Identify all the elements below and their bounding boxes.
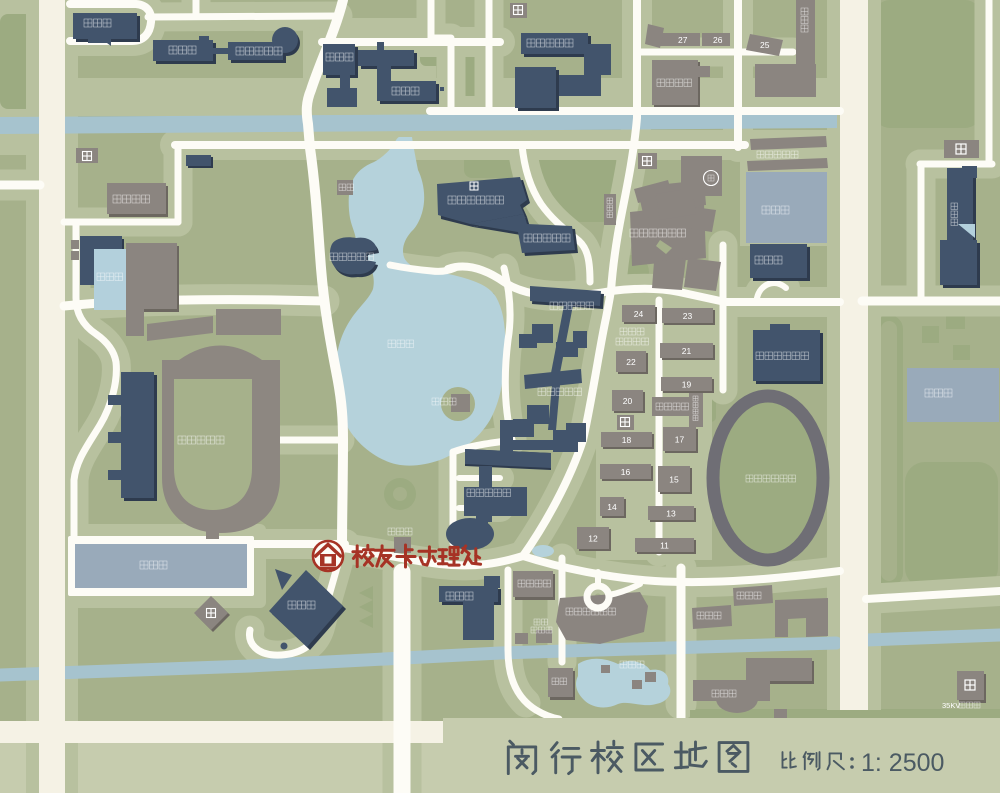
- svg-text:14: 14: [607, 502, 617, 512]
- svg-text:11: 11: [660, 541, 669, 551]
- svg-text:1: 2500: 1: 2500: [861, 749, 944, 777]
- svg-text:22: 22: [626, 357, 636, 367]
- svg-text:35KV: 35KV: [942, 701, 960, 710]
- svg-text:21: 21: [682, 346, 692, 356]
- svg-text:12: 12: [588, 534, 598, 544]
- svg-text:18: 18: [622, 435, 632, 445]
- svg-text:24: 24: [634, 309, 644, 319]
- svg-text:26: 26: [713, 35, 723, 45]
- svg-text:25: 25: [760, 40, 770, 50]
- svg-text:17: 17: [675, 435, 685, 445]
- svg-text:13: 13: [666, 509, 676, 519]
- svg-text:20: 20: [623, 396, 633, 406]
- svg-text:19: 19: [682, 380, 692, 390]
- svg-text:15: 15: [669, 475, 679, 485]
- svg-text:16: 16: [621, 467, 631, 477]
- svg-text:23: 23: [683, 311, 693, 321]
- svg-text:27: 27: [678, 35, 688, 45]
